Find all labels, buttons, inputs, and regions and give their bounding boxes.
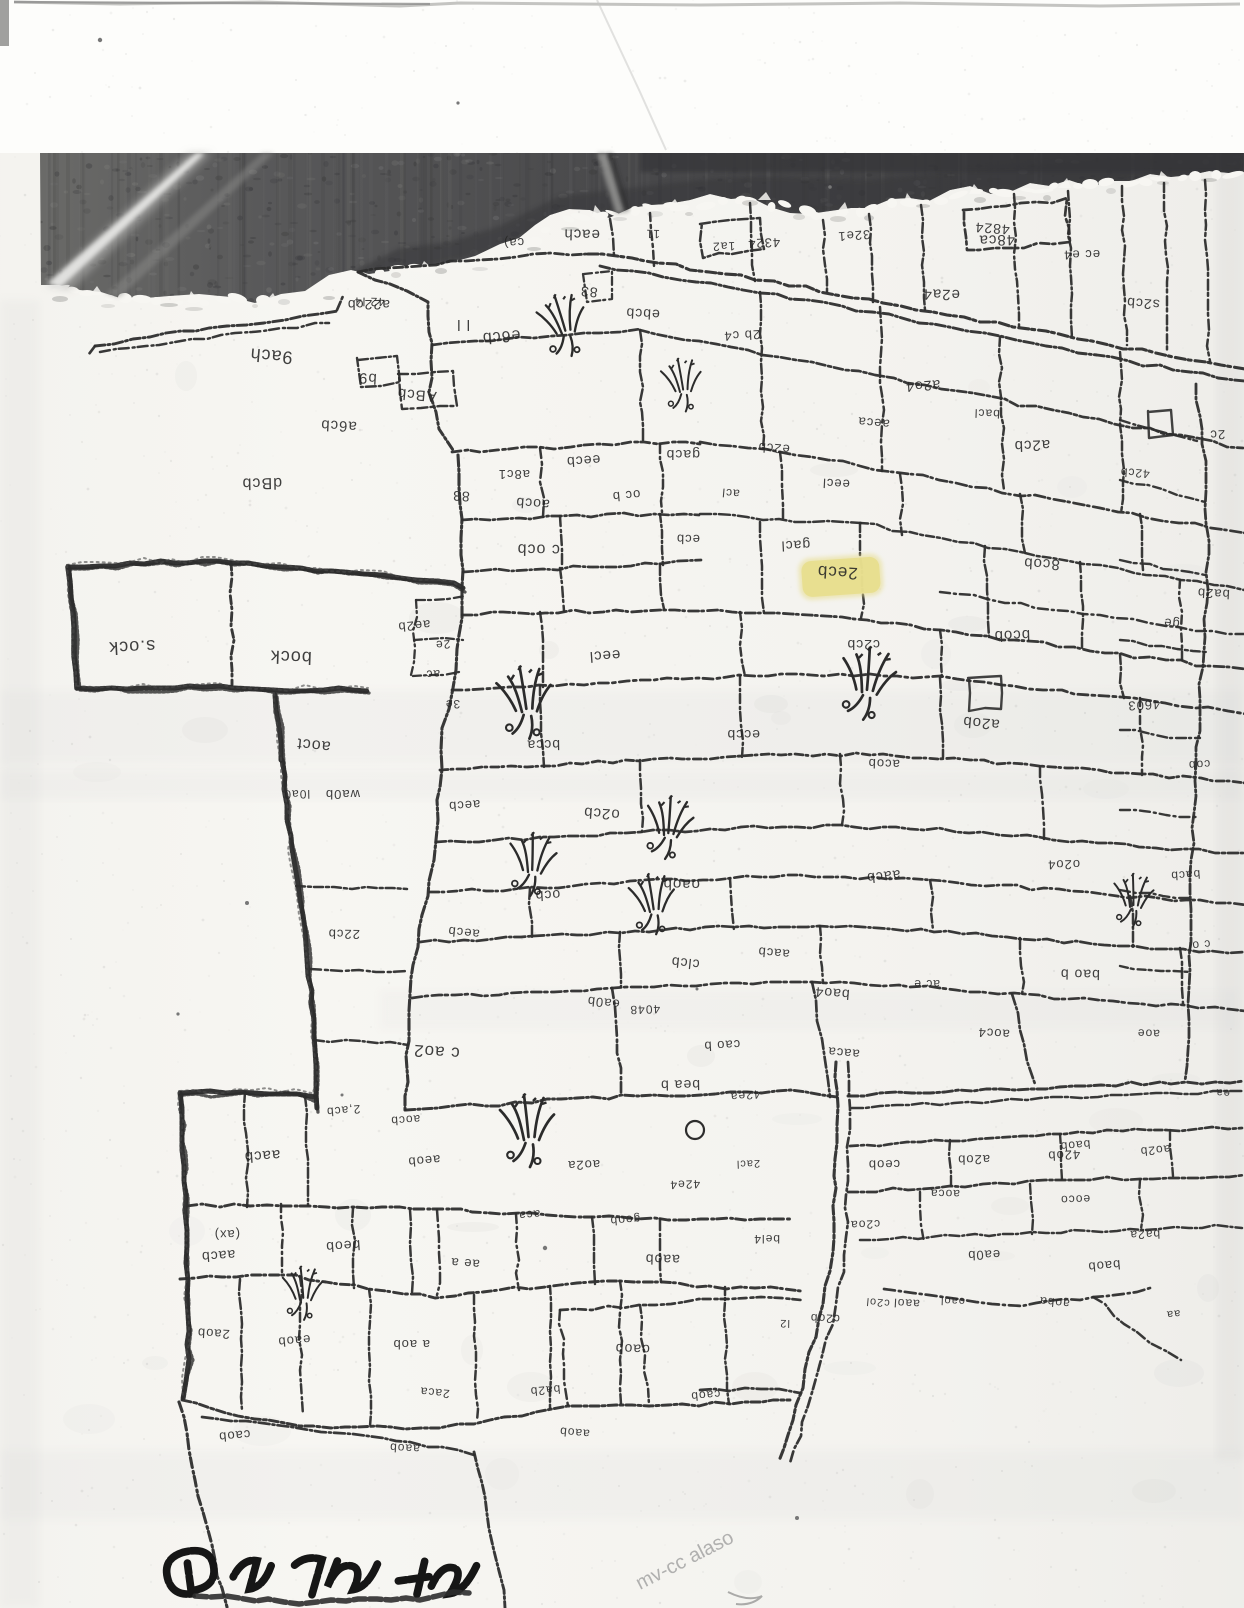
svg-text:a2ob: a2ob [957, 1152, 990, 1168]
svg-text:l2: l2 [779, 1317, 790, 1329]
svg-text:wa0b: wa0b [325, 787, 361, 802]
svg-text:c ocb: c ocb [517, 540, 561, 558]
svg-text:ae a: ae a [450, 1255, 480, 1272]
svg-text:22cb: 22cb [328, 926, 360, 942]
svg-text:ca): ca) [503, 235, 525, 251]
svg-text:gacb: gacb [666, 447, 700, 463]
svg-text:ec e4: ec e4 [1063, 247, 1100, 263]
svg-text:bock: bock [269, 647, 312, 668]
svg-text:a8c1: a8c1 [498, 467, 530, 482]
svg-text:bacl: bacl [974, 406, 1000, 421]
svg-text:ecb: ecb [676, 532, 700, 547]
svg-text:a2ob: a2ob [962, 713, 1001, 733]
svg-text:b9: b9 [358, 369, 378, 387]
svg-text:l0a0: l0a0 [283, 787, 310, 801]
svg-text:32e1: 32e1 [837, 227, 871, 244]
svg-text:aeob: aeob [407, 1152, 441, 1170]
svg-text:aa: aa [1166, 1307, 1181, 1320]
svg-text:aoe: aoe [1137, 1026, 1161, 1041]
svg-text:c2cb: c2cb [846, 637, 880, 653]
svg-text:ba2b: ba2b [529, 1382, 561, 1399]
svg-text:each: each [563, 225, 600, 243]
svg-text:a aob: a aob [392, 1337, 430, 1352]
svg-text:aacb: aacb [757, 944, 790, 962]
svg-text:aacb: aacb [243, 1146, 281, 1166]
svg-text:42cb: 42cb [1119, 465, 1150, 481]
svg-text:eoco: eoco [1060, 1192, 1091, 1207]
svg-text:aoc4: aoc4 [977, 1025, 1010, 1042]
svg-text:eaob: eaob [277, 1332, 311, 1350]
svg-text:aaca: aaca [827, 1044, 860, 1062]
svg-text:e2a4: e2a4 [922, 285, 960, 303]
svg-text:83: 83 [579, 283, 598, 301]
svg-text:oaob: oaob [614, 1341, 650, 1358]
svg-text:ao2a: ao2a [567, 1157, 600, 1173]
svg-text:eecl: eecl [588, 646, 621, 665]
svg-text:ea: ea [1215, 1086, 1230, 1099]
svg-text:ceob: ceob [868, 1157, 900, 1173]
svg-text:bacb: bacb [1170, 867, 1201, 883]
svg-text:geob: geob [609, 1212, 641, 1228]
svg-text:ba2a: ba2a [1129, 1227, 1160, 1242]
svg-text:(ax): (ax) [214, 1227, 241, 1242]
svg-text:42 l4: 42 l4 [354, 294, 385, 309]
svg-text:oaob: oaob [662, 875, 700, 893]
svg-text:2,acb: 2,acb [326, 1102, 361, 1119]
svg-text:2c: 2c [1209, 427, 1225, 443]
svg-text:4048: 4048 [629, 1002, 660, 1017]
svg-text:a2cb: a2cb [1013, 436, 1050, 454]
svg-text:e6cb: e6cb [481, 326, 521, 346]
svg-text:cob: cob [1187, 757, 1210, 773]
svg-text:acl: acl [721, 485, 740, 501]
svg-text:ac e: ac e [913, 977, 940, 991]
svg-text:gacl: gacl [780, 537, 810, 555]
svg-text:bea b: bea b [660, 1077, 700, 1094]
svg-text:aecb: aecb [448, 797, 481, 814]
svg-text:oaol: oaol [940, 1294, 965, 1307]
svg-text:c ao2: c ao2 [412, 1041, 460, 1063]
svg-text:ea0b: ea0b [967, 1247, 1000, 1263]
svg-text:dBcb: dBcb [241, 474, 282, 492]
svg-text:3e: 3e [445, 697, 461, 712]
svg-text:1a2: 1a2 [712, 239, 736, 254]
svg-text:aaob: aaob [645, 1251, 680, 1268]
svg-text:c ol: c ol [1187, 937, 1211, 953]
svg-text:4324: 4324 [747, 235, 780, 251]
svg-text:eecb: eecb [566, 452, 601, 470]
svg-text:c2oa: c2oa [850, 1217, 881, 1232]
svg-text:ocb: ocb [534, 887, 560, 904]
svg-text:aaol: aaol [893, 1296, 920, 1311]
svg-text:cao b: cao b [703, 1037, 741, 1054]
svg-text:2ecb: 2ecb [816, 562, 858, 583]
svg-text:8cob: 8cob [1023, 554, 1060, 573]
svg-text:2b c4: 2b c4 [723, 327, 761, 344]
svg-text:oc b: oc b [611, 487, 641, 504]
svg-text:baob: baob [1087, 1257, 1121, 1275]
svg-text:ao2b: ao2b [1139, 1142, 1171, 1159]
svg-text:o2o4: o2o4 [1047, 857, 1080, 873]
svg-text:ba2b: ba2b [1196, 585, 1230, 602]
svg-text:s2cb: s2cb [1126, 295, 1161, 313]
svg-text:bcob: bcob [993, 626, 1030, 644]
svg-text:ac: ac [425, 667, 440, 682]
svg-text:ebcb: ebcb [625, 305, 660, 323]
svg-text:aocb: aocb [515, 495, 550, 513]
svg-text:11: 11 [645, 227, 660, 241]
svg-text:c2ol: c2ol [865, 1295, 890, 1309]
svg-text:o2cb: o2cb [583, 803, 621, 823]
svg-text:aeca: aeca [857, 414, 890, 432]
svg-text:aoca: aoca [930, 1186, 960, 1201]
svg-text:9ach: 9ach [249, 344, 294, 368]
svg-text:ge: ge [1162, 615, 1180, 632]
svg-text:clcb: clcb [670, 954, 700, 973]
svg-text:ae2b: ae2b [397, 617, 431, 635]
svg-text:83: 83 [452, 488, 471, 505]
svg-text:2aob: 2aob [196, 1325, 230, 1342]
svg-text:a2e4: a2e4 [905, 377, 941, 395]
svg-text:s.ock: s.ock [108, 636, 156, 658]
svg-text:eccb: eccb [726, 727, 760, 743]
svg-text:2aca: 2aca [419, 1384, 450, 1401]
svg-text:e2cb: e2cb [757, 440, 790, 457]
svg-text:bel4: bel4 [753, 1232, 780, 1246]
svg-text:42e4: 42e4 [669, 1177, 700, 1192]
svg-text:aaob: aaob [389, 1440, 420, 1456]
svg-text:c2ob: c2ob [810, 1311, 841, 1326]
svg-text:baob: baob [1059, 1137, 1091, 1154]
svg-text:2acl: 2acl [736, 1157, 761, 1170]
svg-text:acob: acob [867, 756, 900, 772]
svg-text:caob: caob [218, 1427, 251, 1445]
svg-text:bao b: bao b [1060, 966, 1100, 983]
svg-text:l l: l l [456, 316, 470, 333]
svg-text:beob: beob [325, 1237, 361, 1255]
svg-text:aoct: aoct [296, 734, 332, 754]
svg-text:aocb: aocb [390, 1112, 421, 1128]
svg-text:caob: caob [690, 1387, 721, 1404]
svg-text:aca: aca [517, 1207, 540, 1223]
svg-text:a6cb: a6cb [320, 416, 357, 435]
svg-text:aaob: aaob [558, 1424, 590, 1441]
svg-text:ABcb: ABcb [396, 385, 437, 405]
svg-text:2e: 2e [434, 637, 451, 652]
svg-text:4603: 4603 [1127, 697, 1161, 714]
svg-text:eecl: eecl [822, 476, 851, 492]
svg-text:48ca: 48ca [978, 231, 1015, 249]
svg-text:aacb: aacb [201, 1247, 236, 1265]
svg-text:bcca: bcca [526, 737, 560, 754]
svg-text:bao4: bao4 [814, 984, 850, 1003]
